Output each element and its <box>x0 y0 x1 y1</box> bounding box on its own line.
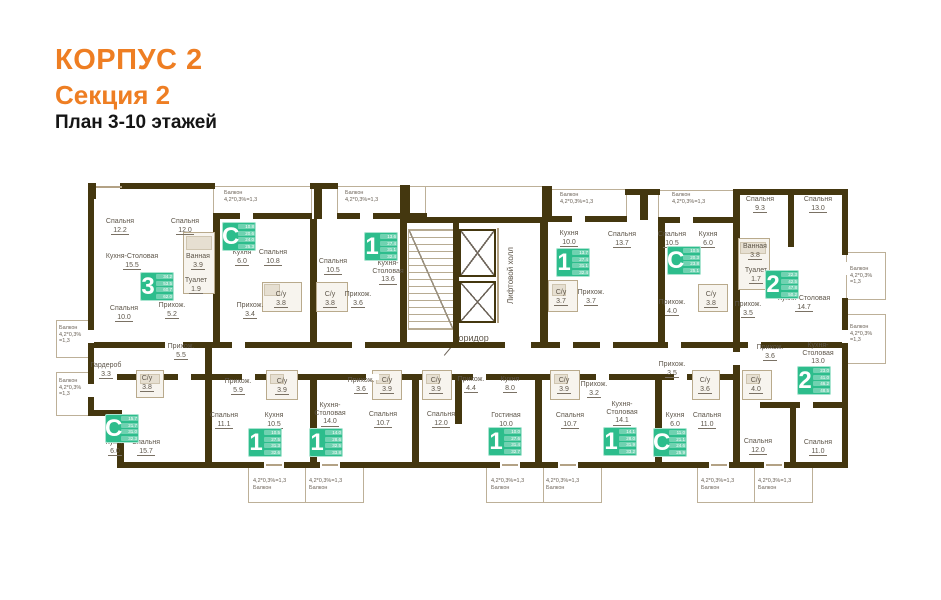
door-opening <box>842 262 848 275</box>
room-area: 4.0 <box>749 386 763 395</box>
room-name: Прихож. <box>215 302 285 310</box>
room-name: Спальня <box>783 439 853 447</box>
apartment-type: 1 <box>248 428 264 457</box>
room-area: 3.9 <box>191 262 205 271</box>
room-label: Прихож.3.4 <box>215 302 285 319</box>
apartment-type: 1 <box>309 428 325 457</box>
wall-segment <box>658 217 735 223</box>
door-opening <box>505 342 531 348</box>
room-label: Спальня13.0 <box>783 196 853 213</box>
balcony-label: Балкон 4,2*0,3% =1,3 <box>850 324 872 344</box>
balcony-label: Балкон 4,2*0,3% =1,3 <box>850 266 872 286</box>
room-name: Прихож. <box>323 291 393 299</box>
wall-segment <box>453 223 459 342</box>
room-name: Спальня <box>85 218 155 226</box>
room-area: 3.6 <box>698 386 712 395</box>
door-opening <box>240 213 253 219</box>
room-area: 12.2 <box>111 227 129 236</box>
window-line <box>266 464 282 466</box>
room-area: 13.6 <box>379 276 397 285</box>
room-area: 3.8 <box>748 252 762 261</box>
door-opening <box>668 342 681 348</box>
room-label: Кухня- Столовая13.6 <box>353 260 423 285</box>
balcony-label: 4,2*0,3%=1,3 Балкон <box>491 478 524 491</box>
room-name: Прихож. <box>137 302 207 310</box>
room-area: 8.0 <box>503 385 517 394</box>
window-line <box>502 464 518 466</box>
apartment-areas: 14.028.632.533.8 <box>325 428 343 457</box>
room-name: Кухня- Столовая <box>353 260 423 275</box>
room-label: С/у3.9 <box>247 378 317 395</box>
room-area: 14.0 <box>321 418 339 427</box>
elevator-shaft <box>459 281 496 323</box>
apartment-type: 1 <box>488 427 504 456</box>
room-name: Прихож. <box>559 381 629 389</box>
wall-segment <box>400 217 548 223</box>
wall-segment <box>542 186 552 219</box>
apartment-type: 1 <box>556 248 572 277</box>
room-area: 3.8 <box>140 384 154 393</box>
room-area: 10.5 <box>324 267 342 276</box>
room-area: 12.0 <box>176 227 194 236</box>
apartment-type: С <box>105 414 121 443</box>
room-area: 5.5 <box>174 352 188 361</box>
room-area: 12.0 <box>749 447 767 456</box>
apartment-areas: 10.520.323.825.1 <box>683 246 701 275</box>
wall-segment <box>640 192 648 220</box>
apartment-badge-2: 222.342.547.850.2 <box>765 270 799 299</box>
window-line <box>96 186 122 188</box>
room-name: Прихож. <box>637 361 707 369</box>
window-line <box>322 464 338 466</box>
room-name: Гардероб <box>71 362 141 370</box>
room-area: 3.6 <box>351 300 365 309</box>
apartment-type: С <box>222 222 238 251</box>
wall-segment <box>314 186 322 219</box>
room-name: Спальня <box>783 196 853 204</box>
room-area: 3.7 <box>584 298 598 307</box>
room-area: 5.9 <box>231 387 245 396</box>
room-area: 3.6 <box>763 353 777 362</box>
door-opening <box>600 342 613 348</box>
room-label: Кухня-Столовая15.5 <box>97 253 167 270</box>
apartment-areas: 34.253.560.762.0 <box>156 272 174 301</box>
floor-plan: Открытый балкон Лифтовой холл Коридор Ба… <box>0 0 941 600</box>
thin-wall <box>497 228 499 323</box>
window-line <box>766 464 782 466</box>
room-name: Спальня <box>150 218 220 226</box>
window-line <box>711 464 727 466</box>
room-area: 14.7 <box>795 304 813 313</box>
room-area: 1.9 <box>189 286 203 295</box>
room-name: Прихож. <box>556 289 626 297</box>
apartment-badge-3: 334.253.560.762.0 <box>140 272 174 301</box>
room-name: Кухня- Столовая <box>783 342 853 357</box>
apartment-areas: 15.721.731.032.3 <box>121 414 139 443</box>
room-label: Прихож.5.5 <box>146 343 216 360</box>
apartment-areas: 10.820.624.025.3 <box>238 222 256 251</box>
floor-plan-page: КОРПУС 2 Секция 2 План 3-10 этажей Откры… <box>0 0 941 600</box>
room-name: Ванная <box>720 243 790 251</box>
room-label: Спальня11.0 <box>672 412 742 429</box>
door-opening <box>88 330 94 343</box>
balcony-label: 4,2*0,3%=1,3 Балкон <box>701 478 734 491</box>
room-label: Прихож.5.2 <box>137 302 207 319</box>
wall-segment <box>205 348 212 468</box>
door-opening <box>572 216 585 222</box>
room-name: С/у <box>247 378 317 386</box>
wall-segment <box>213 213 312 219</box>
room-label: Прихож.3.5 <box>637 361 707 378</box>
room-area: 5.2 <box>165 311 179 320</box>
balcony-label: Балкон 4,2*0,3%=1,3 <box>672 192 705 205</box>
door-opening <box>560 342 573 348</box>
apartment-badge-1: 113.627.431.132.4 <box>364 232 398 261</box>
apartment-areas: 13.627.431.132.4 <box>380 232 398 261</box>
room-name: С/у <box>721 377 791 385</box>
balcony-label: Балкон 4,2*0,3%=1,3 <box>345 190 378 203</box>
room-area: 10.8 <box>264 258 282 267</box>
apartment-badge-С: С10.520.323.825.1 <box>667 246 701 275</box>
wall-segment <box>842 298 848 316</box>
room-label: Прихож.3.6 <box>323 291 393 308</box>
room-area: 15.5 <box>123 262 141 271</box>
room-area: 10.0 <box>115 314 133 323</box>
apartment-type: С <box>653 428 669 457</box>
apartment-type: 3 <box>140 272 156 301</box>
wall-segment <box>88 183 96 199</box>
room-area: 3.5 <box>741 310 755 319</box>
room-area: 4.0 <box>665 308 679 317</box>
door-opening <box>360 213 373 219</box>
apartment-type: С <box>667 246 683 275</box>
apartment-areas: 22.342.547.850.2 <box>781 270 799 299</box>
apartment-type: 2 <box>797 366 813 395</box>
elevator-shaft <box>459 229 496 277</box>
room-area: 14.1 <box>613 417 631 426</box>
room-label: С/у4.0 <box>721 377 791 394</box>
apartment-type: 1 <box>364 232 380 261</box>
room-area: 10.0 <box>560 239 578 248</box>
room-label: Кухня- Столовая13.0 <box>783 342 853 367</box>
room-name: Кухня <box>673 231 743 239</box>
apartment-badge-1: 114.128.031.933.2 <box>603 427 637 456</box>
room-area: 1.7 <box>749 276 763 285</box>
apartment-badge-1: 110.027.631.432.7 <box>488 427 522 456</box>
apartment-badge-С: С10.820.624.025.3 <box>222 222 256 251</box>
room-area: 10.7 <box>374 420 392 429</box>
room-label: Спальня12.0 <box>150 218 220 235</box>
balcony-label: 4,2*0,3%=1,3 Балкон <box>758 478 791 491</box>
room-name: Прихож. <box>713 301 783 309</box>
apartment-type: 2 <box>765 270 781 299</box>
room-area: 3.2 <box>587 390 601 399</box>
room-label: С/у3.8 <box>112 375 182 392</box>
apartment-areas: 23.041.046.248.5 <box>813 366 831 395</box>
room-label: Спальня12.2 <box>85 218 155 235</box>
balcony-label: Балкон 4,2*0,3%=1,3 <box>224 190 257 203</box>
room-area: 15.7 <box>137 448 155 457</box>
wall-segment <box>400 185 410 217</box>
door-opening <box>680 217 693 223</box>
room-area: 9.3 <box>753 205 767 214</box>
apartment-areas: 10.027.631.432.7 <box>504 427 522 456</box>
window-line <box>560 464 576 466</box>
room-name: Кухня-Столовая <box>97 253 167 261</box>
apartment-areas: 14.128.031.933.2 <box>619 427 637 456</box>
room-area: 3.3 <box>99 371 113 380</box>
wall-segment <box>548 216 627 222</box>
door-opening <box>232 342 245 348</box>
wall-segment <box>120 183 215 189</box>
balcony-label: Балкон 4,2*0,3%=1,3 <box>560 192 593 205</box>
room-area: 6.0 <box>701 240 715 249</box>
apartment-areas: 11.021.124.625.9 <box>669 428 687 457</box>
apartment-type: 1 <box>603 427 619 456</box>
apartment-badge-С: С15.721.731.032.3 <box>105 414 139 443</box>
room-area: 10.7 <box>561 421 579 430</box>
fixture <box>186 236 212 250</box>
room-name: Спальня <box>406 411 476 419</box>
balcony-label: 4,2*0,3%=1,3 Балкон <box>546 478 579 491</box>
room-name: Гостиная <box>471 412 541 420</box>
room-label: Прихож.3.7 <box>556 289 626 306</box>
room-area: 11.0 <box>698 421 715 430</box>
room-name: Прихож. <box>146 343 216 351</box>
door-opening <box>352 342 365 348</box>
balcony-label: Балкон 4,2*0,3% =1,3 <box>59 325 81 345</box>
room-area: 12.0 <box>432 420 450 429</box>
apartment-badge-1: 113.727.431.132.4 <box>556 248 590 277</box>
apartment-badge-С: С11.021.124.625.9 <box>653 428 687 457</box>
balcony-label: 4,2*0,3%=1,3 Балкон <box>253 478 286 491</box>
room-label: Прихож.3.2 <box>559 381 629 398</box>
balcony-label: 4,2*0,3%=1,3 Балкон <box>309 478 342 491</box>
room-name: С/у <box>112 375 182 383</box>
apartment-badge-2: 223.041.046.248.5 <box>797 366 831 395</box>
room-name: Спальня <box>672 412 742 420</box>
room-label: Прихож.3.5 <box>713 301 783 318</box>
room-area: 13.7 <box>613 240 631 249</box>
door-opening <box>800 402 813 408</box>
lift-hall-label: Лифтовой холл <box>506 236 522 316</box>
room-area: 13.0 <box>809 205 827 214</box>
balcony-label: Балкон 4,2*0,3% =1,3 <box>59 378 81 398</box>
room-name: С/у <box>676 291 746 299</box>
room-area: 11.1 <box>215 421 232 430</box>
room-label: Ванная3.8 <box>720 243 790 260</box>
apartment-badge-1: 114.028.632.533.8 <box>309 428 343 457</box>
room-area: 3.9 <box>380 386 394 395</box>
room-label: Спальня11.0 <box>783 439 853 456</box>
room-area: 3.9 <box>275 387 289 396</box>
door-opening <box>88 384 94 397</box>
apartment-areas: 13.727.431.132.4 <box>572 248 590 277</box>
room-area: 11.0 <box>809 448 826 457</box>
apartment-badge-1: 110.527.531.332.6 <box>248 428 282 457</box>
room-label: Спальня12.0 <box>406 411 476 428</box>
room-area: 3.4 <box>243 311 257 320</box>
apartment-areas: 10.527.531.332.6 <box>264 428 282 457</box>
